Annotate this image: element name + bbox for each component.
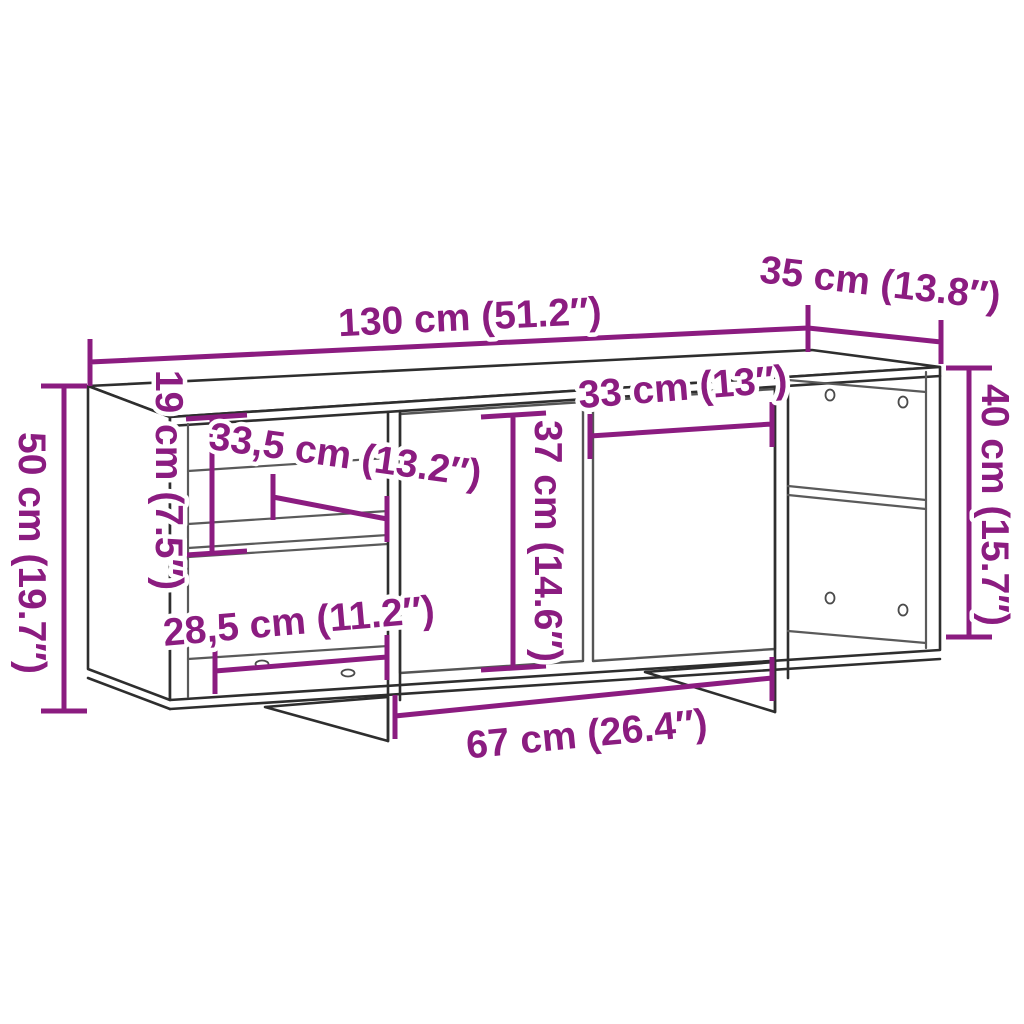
right-back-cam-hole — [899, 397, 908, 408]
left-bottom-cam-hole — [342, 670, 355, 677]
dim-left-top-compartment-height-label: 19 cm (7.5″) — [147, 370, 190, 590]
dim-right-section-height: 40 cm (15.7″) — [946, 368, 1016, 637]
right-back-cam-hole — [826, 593, 835, 604]
diagram-canvas: 130 cm (51.2″) 35 cm (13.8″) 40 cm (15.7… — [0, 0, 1024, 1024]
dim-right-section-height-label: 40 cm (15.7″) — [973, 384, 1016, 626]
left-wall-bracket — [265, 697, 388, 741]
dim-total-width-label: 130 cm (51.2″) — [337, 290, 602, 345]
dim-total-height: 50 cm (19.7″) — [10, 386, 87, 711]
dim-total-height-label: 50 cm (19.7″) — [10, 432, 53, 674]
right-back-cam-hole — [899, 605, 908, 616]
dim-center-section-width-label: 67 cm (26.4″) — [464, 702, 709, 768]
cabinet-dimension-diagram: 130 cm (51.2″) 35 cm (13.8″) 40 cm (15.7… — [0, 0, 1024, 1024]
dim-depth-label: 35 cm (13.8″) — [758, 248, 1003, 318]
dim-depth: 35 cm (13.8″) — [758, 248, 1003, 364]
right-back-cam-hole — [826, 390, 835, 401]
dim-door-height-label: 37 cm (14.6″) — [526, 420, 569, 662]
